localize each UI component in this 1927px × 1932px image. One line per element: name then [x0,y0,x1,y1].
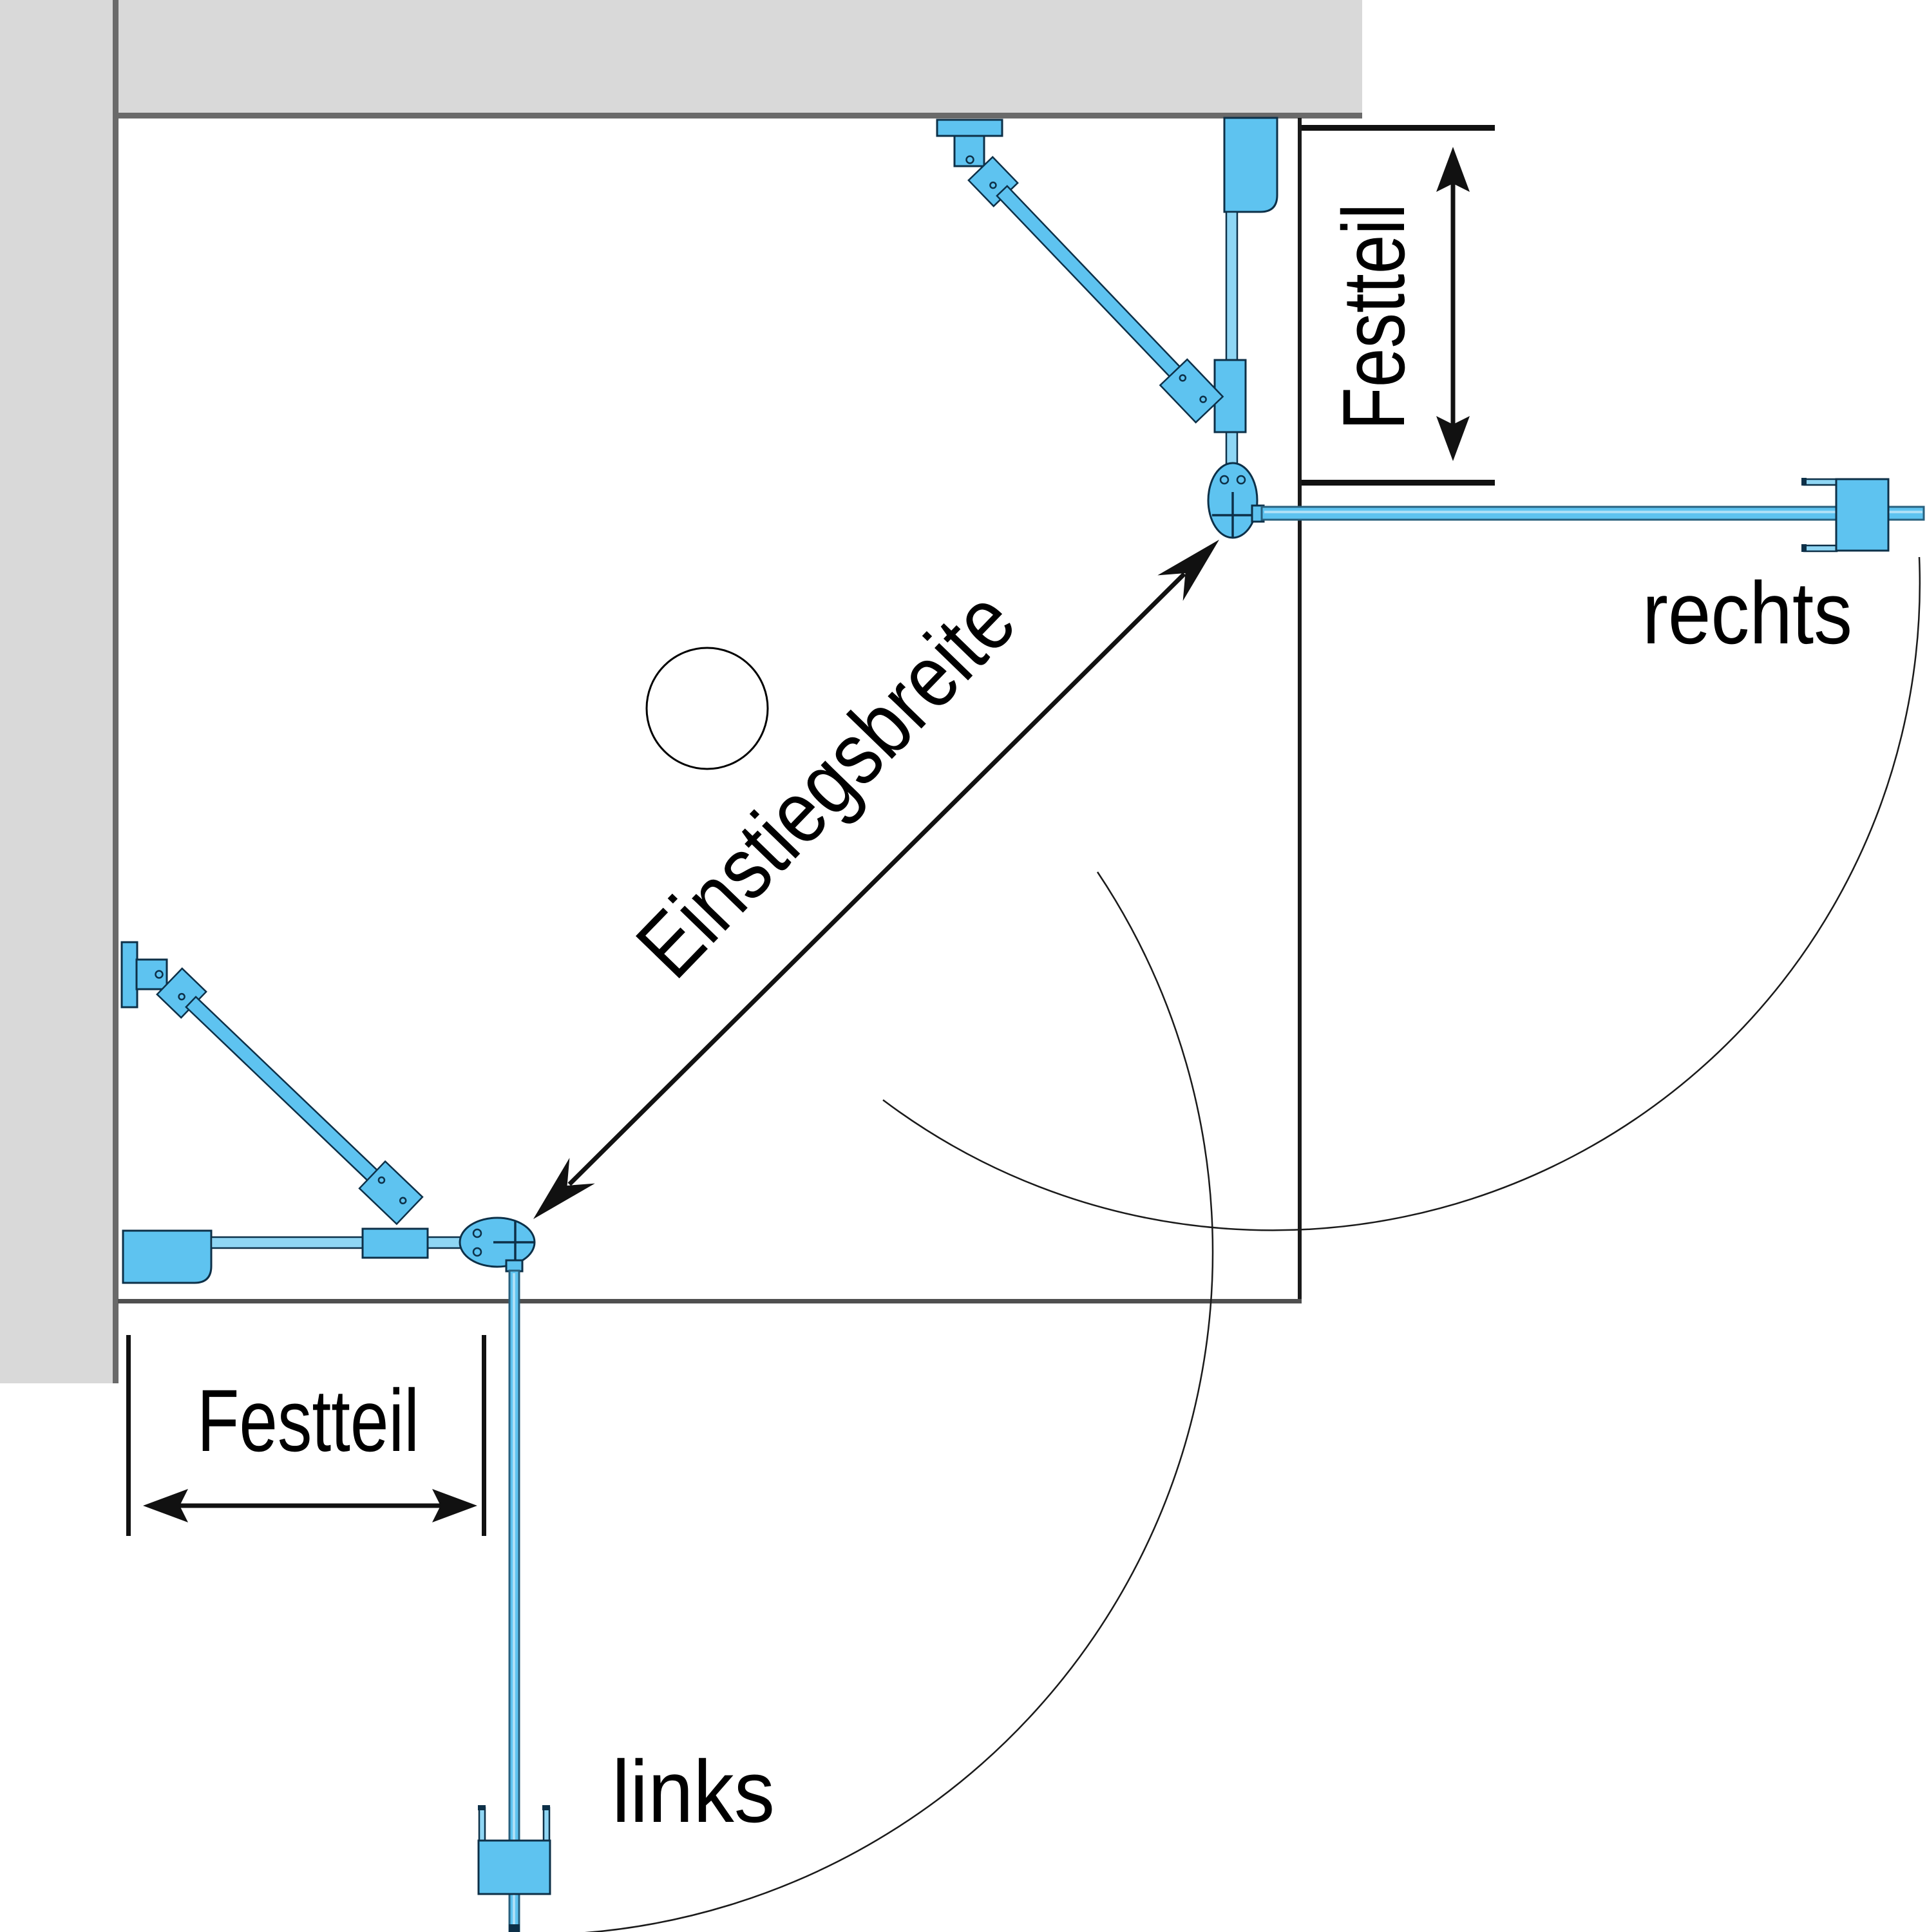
svg-text:Festteil: Festteil [197,1372,419,1470]
svg-text:Festteil: Festteil [1325,204,1423,430]
svg-text:rechts: rechts [1642,564,1852,663]
svg-text:links: links [612,1743,775,1841]
